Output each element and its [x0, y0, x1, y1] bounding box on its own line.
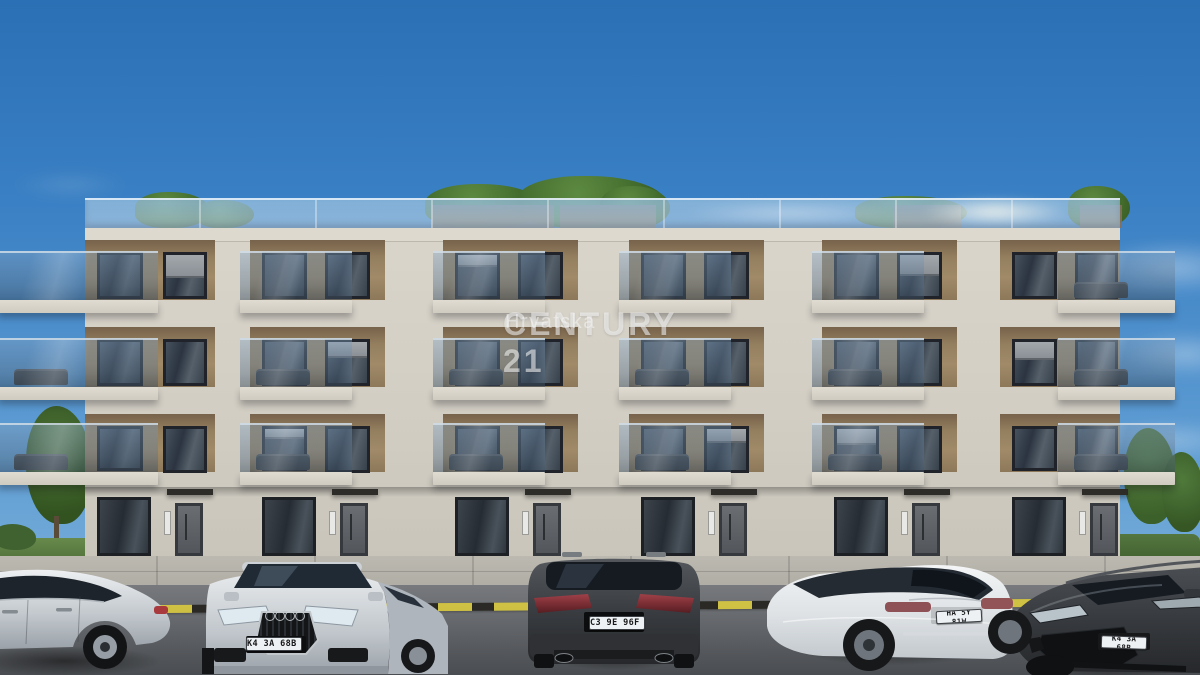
- glass-reflection: [433, 253, 545, 300]
- balcony-slab: [0, 472, 158, 485]
- tall-window: [1012, 339, 1057, 386]
- door-handle: [543, 514, 545, 540]
- intercom-panel: [708, 511, 715, 535]
- balcony-slab: [1058, 387, 1175, 400]
- plate-number: HA 5Y 81W: [937, 609, 982, 624]
- balcony-glass-railing: [619, 251, 731, 300]
- lower-intake: [214, 648, 246, 662]
- license-plate: HA 5Y 81W: [936, 609, 983, 624]
- window-blind: [166, 255, 204, 278]
- render-scene: K4 3A 68B C3 9E 96F HA 5Y 81W K4 3A 68B …: [0, 0, 1200, 675]
- balcony-glass-railing: [812, 423, 924, 472]
- window-blind: [1015, 342, 1054, 360]
- taillight: [154, 606, 168, 614]
- exhaust: [555, 654, 573, 663]
- plate-number: K4 3A 68B: [1102, 635, 1147, 650]
- wheel: [534, 654, 554, 668]
- car-silver-suv-front: [202, 548, 450, 675]
- ground-window: [455, 497, 509, 556]
- balcony-glass-railing: [433, 423, 545, 472]
- balcony-slab: [812, 472, 924, 485]
- balcony-glass-railing: [0, 423, 158, 472]
- balcony-glass-railing: [812, 251, 924, 300]
- license-plate: K4 3A 68B: [1101, 635, 1147, 650]
- door-handle: [56, 608, 72, 612]
- intercom-panel: [1079, 511, 1086, 535]
- glass-reflection: [1058, 253, 1175, 300]
- balcony-glass-railing: [812, 338, 924, 387]
- glass-reflection: [812, 340, 924, 387]
- glass-reflection: [240, 340, 352, 387]
- car-silver-fastback-side: [0, 544, 180, 675]
- balcony-slab: [433, 472, 545, 485]
- door-canopy: [1082, 489, 1128, 495]
- window: [163, 339, 207, 386]
- balcony-slab: [0, 300, 158, 313]
- door-handle: [922, 514, 924, 540]
- door-canopy: [332, 489, 378, 495]
- glass-reflection: [0, 340, 158, 387]
- intercom-panel: [164, 511, 171, 535]
- plate-number: K4 3A 68B: [247, 639, 297, 649]
- balcony-glass-railing: [0, 338, 158, 387]
- balcony-glass-railing: [0, 251, 158, 300]
- taillight: [885, 602, 931, 612]
- balcony-glass-railing: [619, 423, 731, 472]
- wheel: [674, 654, 694, 668]
- glass-reflection: [0, 425, 158, 472]
- glass-reflection: [812, 425, 924, 472]
- canopy-shadow: [85, 487, 1120, 497]
- watermark-region: Hrvatska: [505, 311, 596, 334]
- lower-intake: [328, 648, 368, 662]
- door-canopy: [525, 489, 571, 495]
- ground-window: [641, 497, 695, 556]
- plate-number: C3 9E 96F: [590, 618, 640, 628]
- wheel: [401, 639, 435, 673]
- balcony-slab: [619, 472, 731, 485]
- balcony-slab: [0, 387, 158, 400]
- wheel: [988, 610, 1032, 654]
- balcony-slab: [812, 387, 924, 400]
- balcony-glass-railing: [1058, 338, 1175, 387]
- balcony-slab: [240, 387, 352, 400]
- car-dark-hatch-front: [1006, 543, 1200, 675]
- balcony-slab: [240, 300, 352, 313]
- door-canopy: [904, 489, 950, 495]
- door-handle: [185, 514, 187, 540]
- exhaust: [655, 654, 673, 663]
- balcony-glass-railing: [240, 251, 352, 300]
- roof-rail: [646, 552, 666, 557]
- door-handle: [729, 514, 731, 540]
- balcony-glass-railing: [433, 251, 545, 300]
- wheel: [202, 648, 214, 674]
- intercom-panel: [901, 511, 908, 535]
- window: [163, 426, 207, 473]
- wheel: [83, 625, 127, 669]
- entrance-door: [533, 503, 561, 556]
- glass-reflection: [433, 425, 545, 472]
- door-handle: [1100, 514, 1102, 540]
- intercom-panel: [522, 511, 529, 535]
- balcony-slab: [1058, 300, 1175, 313]
- wheel: [843, 619, 895, 671]
- balcony-slab: [240, 472, 352, 485]
- door-handle: [2, 610, 18, 614]
- balcony-slab: [433, 387, 545, 400]
- license-plate: C3 9E 96F: [589, 616, 645, 630]
- side-mirror: [368, 592, 383, 601]
- bumper-lip: [206, 666, 388, 674]
- glass-reflection: [1058, 340, 1175, 387]
- entrance-door: [719, 503, 747, 556]
- balcony-glass-railing: [240, 423, 352, 472]
- glass-reflection: [0, 253, 158, 300]
- balcony-glass-railing: [1058, 423, 1175, 472]
- taillight: [981, 598, 1013, 609]
- window: [163, 252, 207, 299]
- balcony-glass-railing: [240, 338, 352, 387]
- glass-reflection: [812, 253, 924, 300]
- roof-cornice: [85, 228, 1120, 242]
- tall-window: [1012, 426, 1057, 471]
- door-handle: [350, 514, 352, 540]
- license-plate: K4 3A 68B: [246, 637, 302, 651]
- tall-window: [1012, 252, 1057, 299]
- balcony-slab: [1058, 472, 1175, 485]
- glass-reflection: [1058, 425, 1175, 472]
- car-dark-wagon-rear: [526, 550, 702, 672]
- roof-rail: [562, 552, 582, 557]
- glass-reflection: [619, 425, 731, 472]
- door-canopy: [711, 489, 757, 495]
- door-canopy: [167, 489, 213, 495]
- glass-reflection: [619, 253, 731, 300]
- glass-reflection: [240, 425, 352, 472]
- intercom-panel: [329, 511, 336, 535]
- balcony-glass-railing: [1058, 251, 1175, 300]
- side-mirror: [224, 592, 239, 601]
- balcony-slab: [619, 387, 731, 400]
- balcony-slab: [812, 300, 924, 313]
- glass-reflection: [240, 253, 352, 300]
